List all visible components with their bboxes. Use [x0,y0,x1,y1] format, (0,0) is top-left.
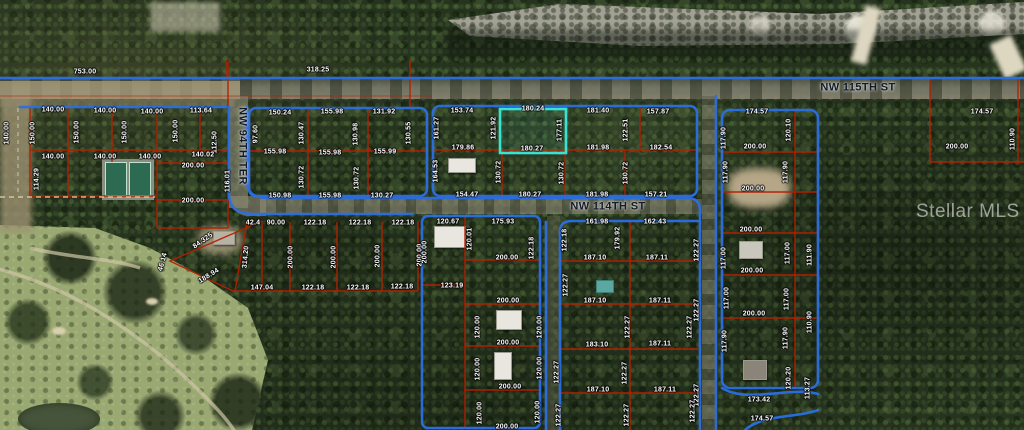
street-name-label: NW 94TH TER [237,107,248,185]
street-name-label: NW 114TH ST [570,202,645,213]
satellite-parcel-map: 753.00318.25140.00140.00140.00113.64140.… [0,0,1024,430]
mls-watermark: Stellar MLS [916,202,1020,221]
street-labels-layer: NW 115TH STNW 114TH STNW 94TH TER [0,0,1024,430]
street-name-label: NW 115TH ST [820,83,895,94]
